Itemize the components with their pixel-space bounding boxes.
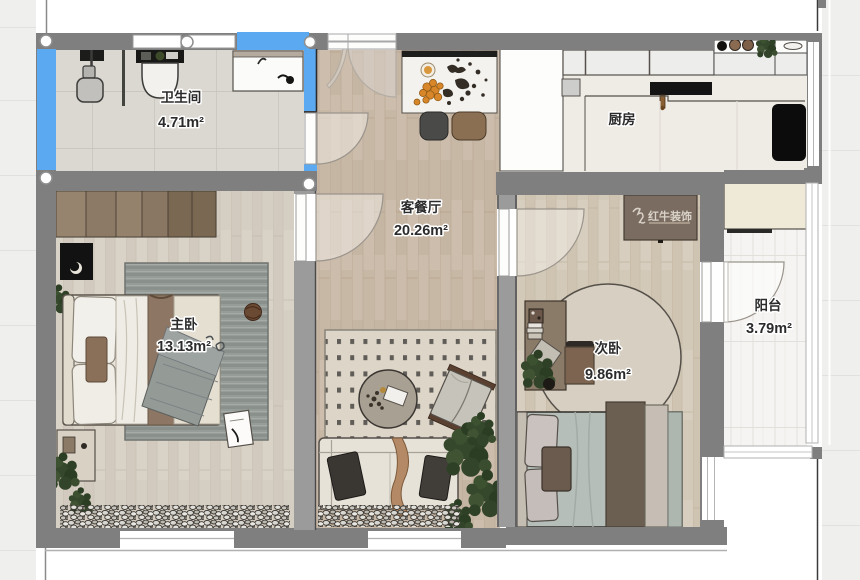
svg-text:3.79m²: 3.79m² [746, 321, 792, 337]
svg-text:次卧: 次卧 [595, 340, 623, 356]
svg-text:客餐厅: 客餐厅 [400, 199, 442, 215]
svg-text:20.26m²: 20.26m² [394, 223, 448, 239]
svg-text:4.71m²: 4.71m² [158, 115, 204, 131]
svg-text:主卧: 主卧 [171, 316, 198, 332]
svg-text:厨房: 厨房 [609, 111, 636, 127]
svg-text:9.86m²: 9.86m² [585, 367, 631, 383]
svg-text:卫生间: 卫生间 [161, 89, 202, 105]
svg-text:阳台: 阳台 [755, 297, 782, 313]
svg-text:红牛装饰: 红牛装饰 [648, 209, 692, 223]
svg-text:13.13m²: 13.13m² [157, 339, 211, 355]
